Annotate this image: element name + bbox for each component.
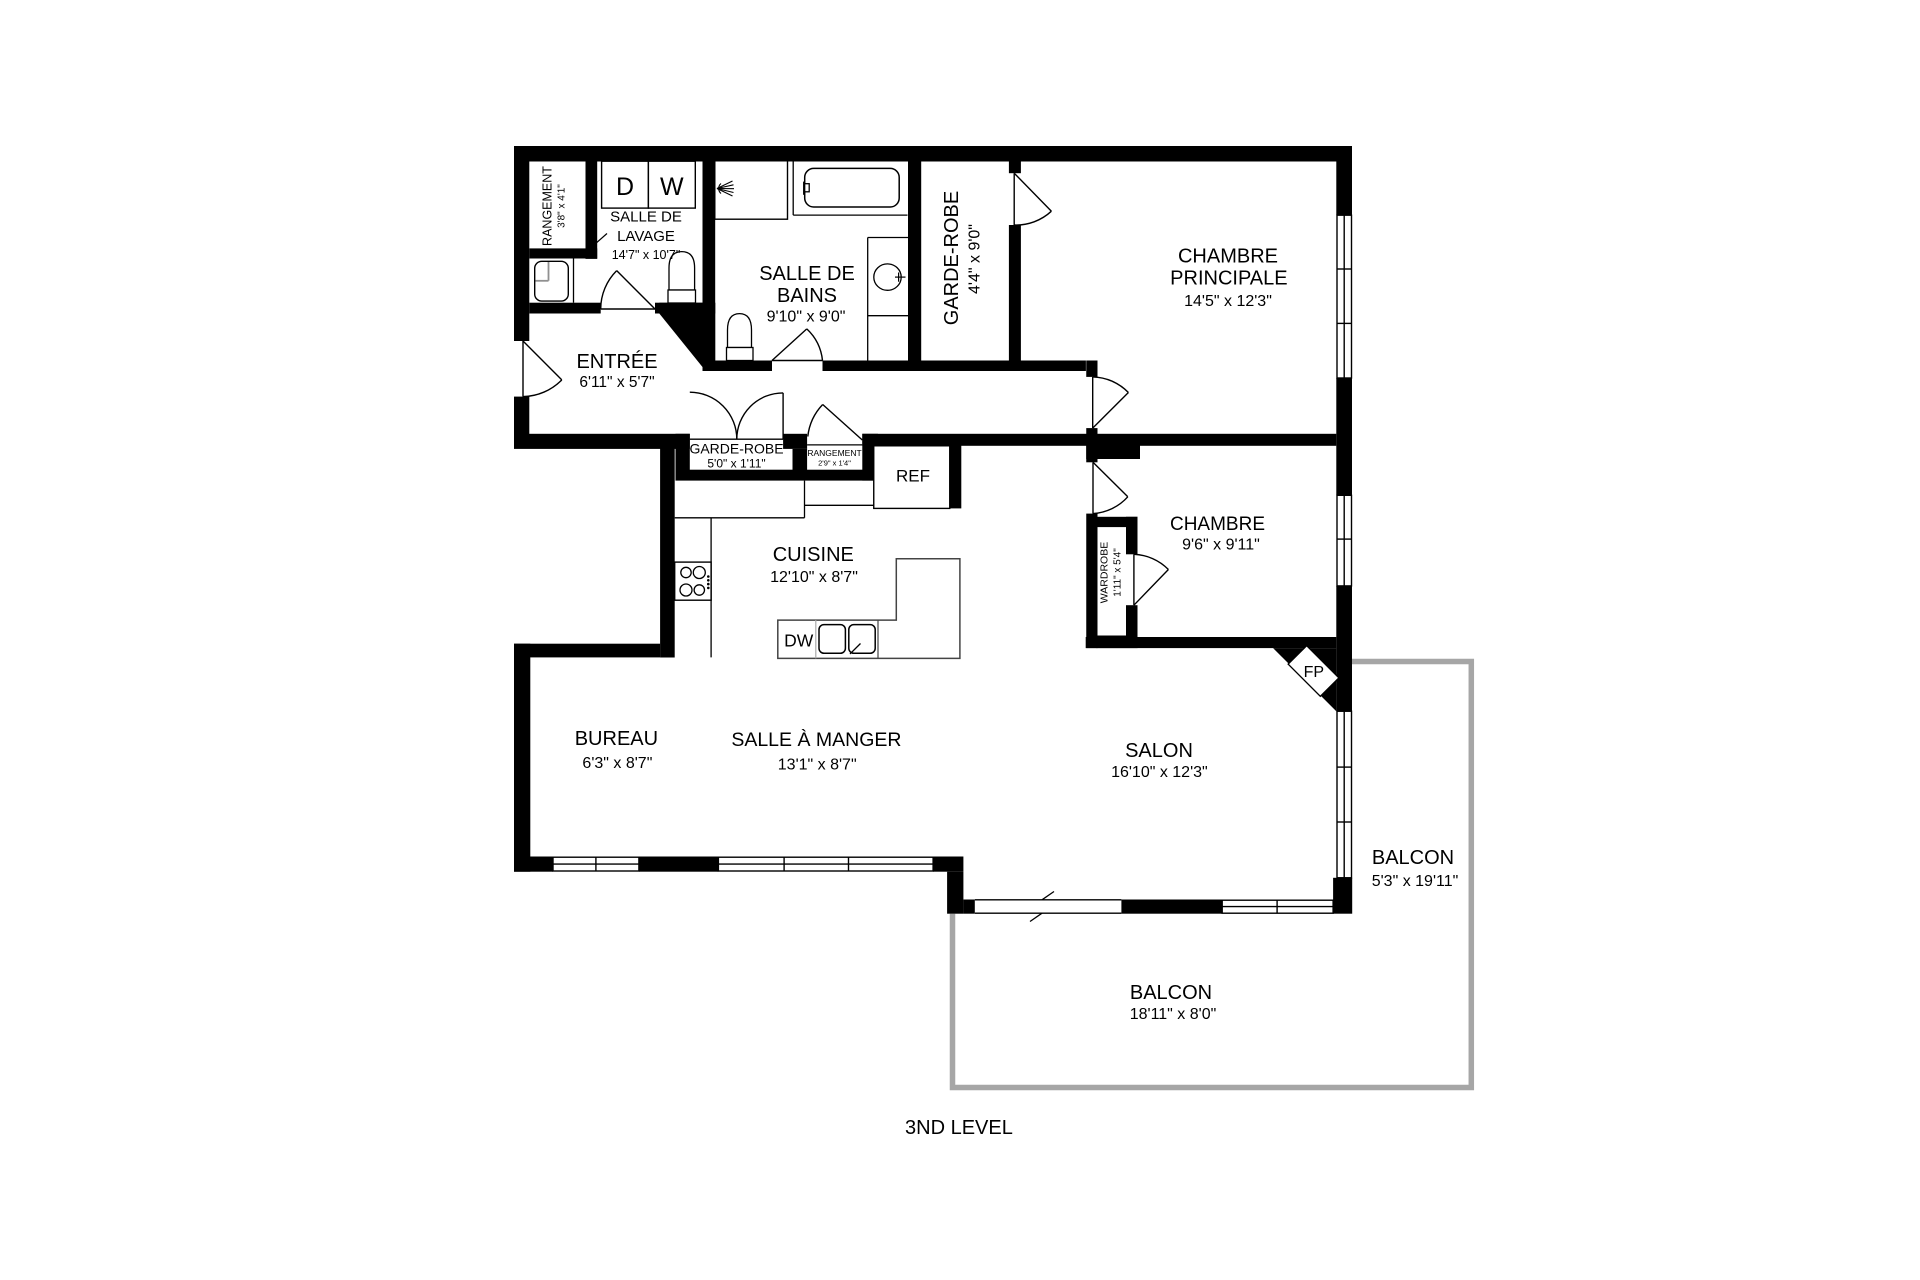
svg-text:12'10" x 8'7": 12'10" x 8'7" [770, 569, 858, 586]
svg-text:BALCON: BALCON [1372, 847, 1454, 869]
svg-text:GARDE-ROBE: GARDE-ROBE [689, 441, 783, 457]
svg-text:SALON: SALON [1125, 740, 1193, 762]
svg-text:CHAMBRE: CHAMBRE [1170, 514, 1265, 535]
svg-text:3ND LEVEL: 3ND LEVEL [905, 1117, 1013, 1139]
svg-text:DW: DW [784, 631, 814, 651]
svg-text:14'5" x 12'3": 14'5" x 12'3" [1184, 293, 1272, 310]
svg-text:5'0" x 1'11": 5'0" x 1'11" [707, 457, 765, 471]
svg-text:RANGEMENT: RANGEMENT [807, 448, 861, 458]
svg-text:PRINCIPALE: PRINCIPALE [1170, 268, 1287, 290]
svg-text:BAINS: BAINS [777, 285, 837, 307]
svg-text:ENTRÉE: ENTRÉE [576, 350, 657, 373]
svg-text:SALLE DE: SALLE DE [759, 263, 855, 285]
svg-text:18'11" x 8'0": 18'11" x 8'0" [1130, 1006, 1217, 1023]
svg-text:SALLE DE: SALLE DE [610, 208, 682, 225]
svg-text:1'11" x 5'4": 1'11" x 5'4" [1113, 548, 1124, 597]
svg-text:SALLE À MANGER: SALLE À MANGER [731, 728, 901, 751]
svg-text:2'9" x 1'4": 2'9" x 1'4" [818, 459, 851, 468]
svg-text:BALCON: BALCON [1130, 982, 1212, 1004]
svg-text:16'10" x 12'3": 16'10" x 12'3" [1111, 764, 1208, 781]
svg-text:BUREAU: BUREAU [575, 728, 658, 750]
svg-text:GARDE-ROBE: GARDE-ROBE [941, 191, 963, 325]
svg-text:W: W [660, 173, 684, 201]
svg-text:5'3" x 19'11": 5'3" x 19'11" [1372, 873, 1459, 890]
svg-text:3'8" x 4'1": 3'8" x 4'1" [557, 184, 568, 228]
svg-text:FP: FP [1304, 664, 1324, 681]
svg-text:D: D [616, 173, 634, 201]
svg-text:CUISINE: CUISINE [773, 544, 854, 566]
svg-text:WARDROBE: WARDROBE [1099, 542, 1111, 603]
svg-text:13'1" x 8'7": 13'1" x 8'7" [778, 756, 857, 773]
svg-text:9'6" x 9'11": 9'6" x 9'11" [1182, 536, 1260, 553]
svg-text:4'4" x 9'0": 4'4" x 9'0" [967, 224, 984, 294]
svg-text:6'3" x 8'7": 6'3" x 8'7" [582, 755, 652, 772]
svg-text:LAVAGE: LAVAGE [617, 228, 675, 245]
svg-text:REF: REF [896, 467, 930, 486]
svg-text:9'10" x 9'0": 9'10" x 9'0" [767, 308, 846, 325]
svg-text:RANGEMENT: RANGEMENT [541, 166, 555, 246]
svg-text:CHAMBRE: CHAMBRE [1178, 246, 1278, 268]
svg-text:14'7" x 10'7": 14'7" x 10'7" [612, 248, 681, 262]
svg-text:6'11" x 5'7": 6'11" x 5'7" [579, 374, 654, 391]
